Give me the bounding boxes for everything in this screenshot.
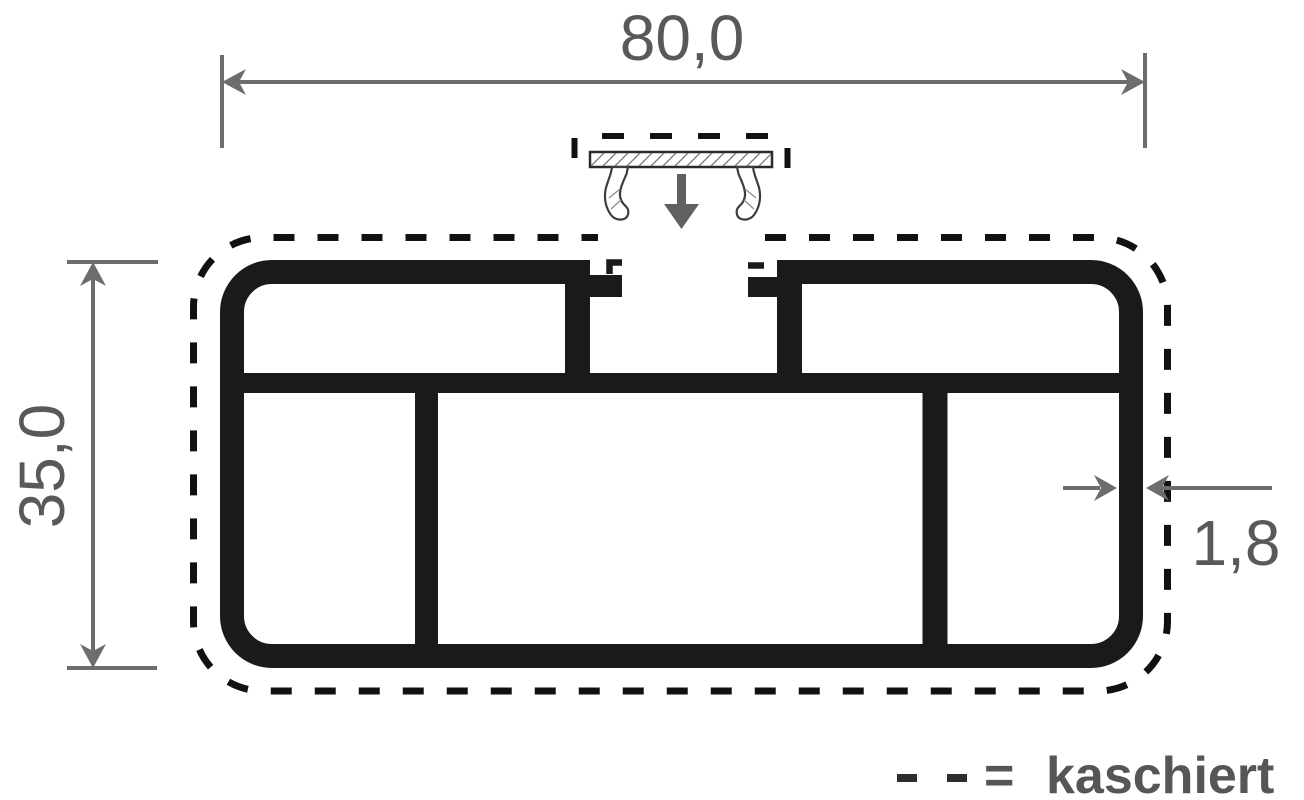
kaschiert-dashed-outline — [194, 238, 1168, 692]
width-dimension: 80,0 — [222, 2, 1145, 148]
legend-label: kaschiert — [1046, 747, 1274, 800]
slot-left-lip-tick — [610, 263, 623, 275]
slot-right-lip — [748, 277, 777, 297]
technical-drawing: 80,0 35,0 1,8 = kaschiert — [0, 0, 1304, 800]
profile-cross-section — [232, 262, 1131, 656]
profile-outer-wall — [232, 272, 1131, 656]
clip-detail — [575, 136, 788, 229]
thickness-dim-label: 1,8 — [1192, 507, 1281, 579]
slot-left-lip — [590, 275, 622, 297]
height-dim-label: 35,0 — [6, 404, 78, 529]
clip-left-hook — [605, 167, 628, 220]
height-dimension: 35,0 — [6, 262, 158, 668]
insert-arrow-icon — [664, 174, 699, 229]
legend-dash-2 — [947, 774, 967, 782]
legend: = kaschiert — [897, 747, 1274, 800]
wall-thickness-dimension: 1,8 — [1063, 475, 1280, 579]
kaschiert-outline-group — [194, 238, 1168, 692]
clip-right-hook — [737, 167, 760, 220]
width-dim-label: 80,0 — [620, 2, 745, 74]
legend-equals: = — [984, 747, 1014, 800]
legend-dash-1 — [897, 774, 917, 782]
drawing-canvas: 80,0 35,0 1,8 = kaschiert — [0, 0, 1304, 800]
